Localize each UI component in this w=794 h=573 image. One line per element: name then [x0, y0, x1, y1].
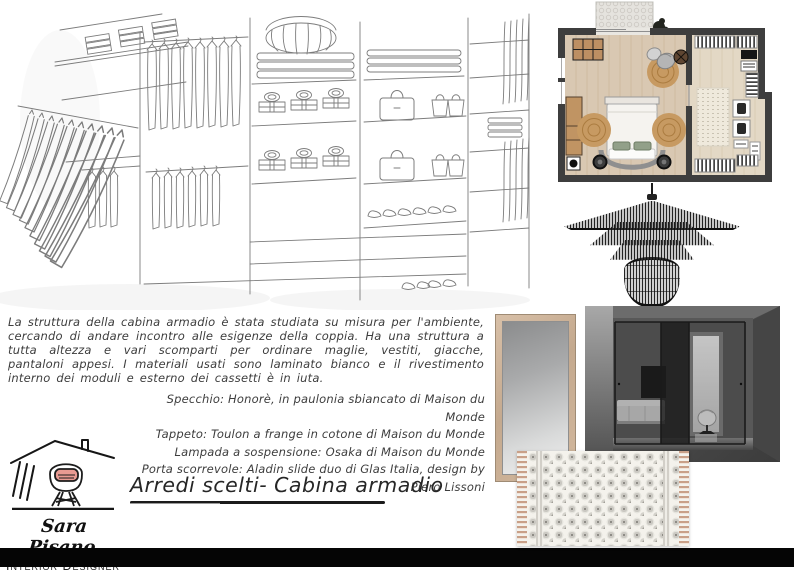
floor-plan-image	[556, 0, 774, 196]
furnishing-item-rug: Tappeto: Toulon a frange in cotone di Ma…	[140, 426, 485, 444]
title-block: Arredi scelti- Cabina armadio	[130, 473, 400, 504]
pendant-lamp-image	[564, 183, 740, 307]
bed-pillow	[634, 142, 651, 150]
lamp-cage	[624, 257, 680, 307]
grid-cabinet	[573, 39, 603, 60]
closet-sketch-image	[0, 0, 534, 310]
bottom-black-bar	[0, 548, 794, 567]
closet-sketch-drawing	[0, 0, 534, 310]
title-underline-sketch	[130, 503, 220, 504]
rug-fringe-left	[517, 451, 527, 546]
closet-rug	[697, 88, 729, 146]
furnishing-item-mirror: Specchio: Honorè, in paulonia sbiancato …	[140, 391, 485, 426]
page-title: Arredi scelti- Cabina armadio	[130, 473, 400, 497]
rug-fringe-right	[679, 451, 689, 546]
description-paragraph: La struttura della cabina armadio è stat…	[8, 316, 484, 386]
rug-border-band	[536, 451, 543, 546]
rug-border-band	[663, 451, 670, 546]
pouf	[594, 156, 607, 169]
bed-pillow	[613, 142, 630, 150]
round-rug	[652, 113, 686, 147]
sliding-door-image	[585, 306, 780, 462]
floor-plan-drawing	[556, 0, 774, 196]
pouf	[658, 156, 671, 169]
rug-field	[527, 451, 679, 546]
furnishing-item-lamp: Lampada a sospensione: Osaka di Maison d…	[140, 444, 485, 462]
sliding-door-photo	[585, 306, 780, 462]
logo-house-chair-icon	[6, 436, 120, 510]
rug-image	[517, 451, 689, 546]
lamp-cord	[651, 183, 653, 194]
glass-door	[615, 322, 745, 444]
lamp-cap	[647, 194, 657, 200]
round-rug	[577, 113, 611, 147]
